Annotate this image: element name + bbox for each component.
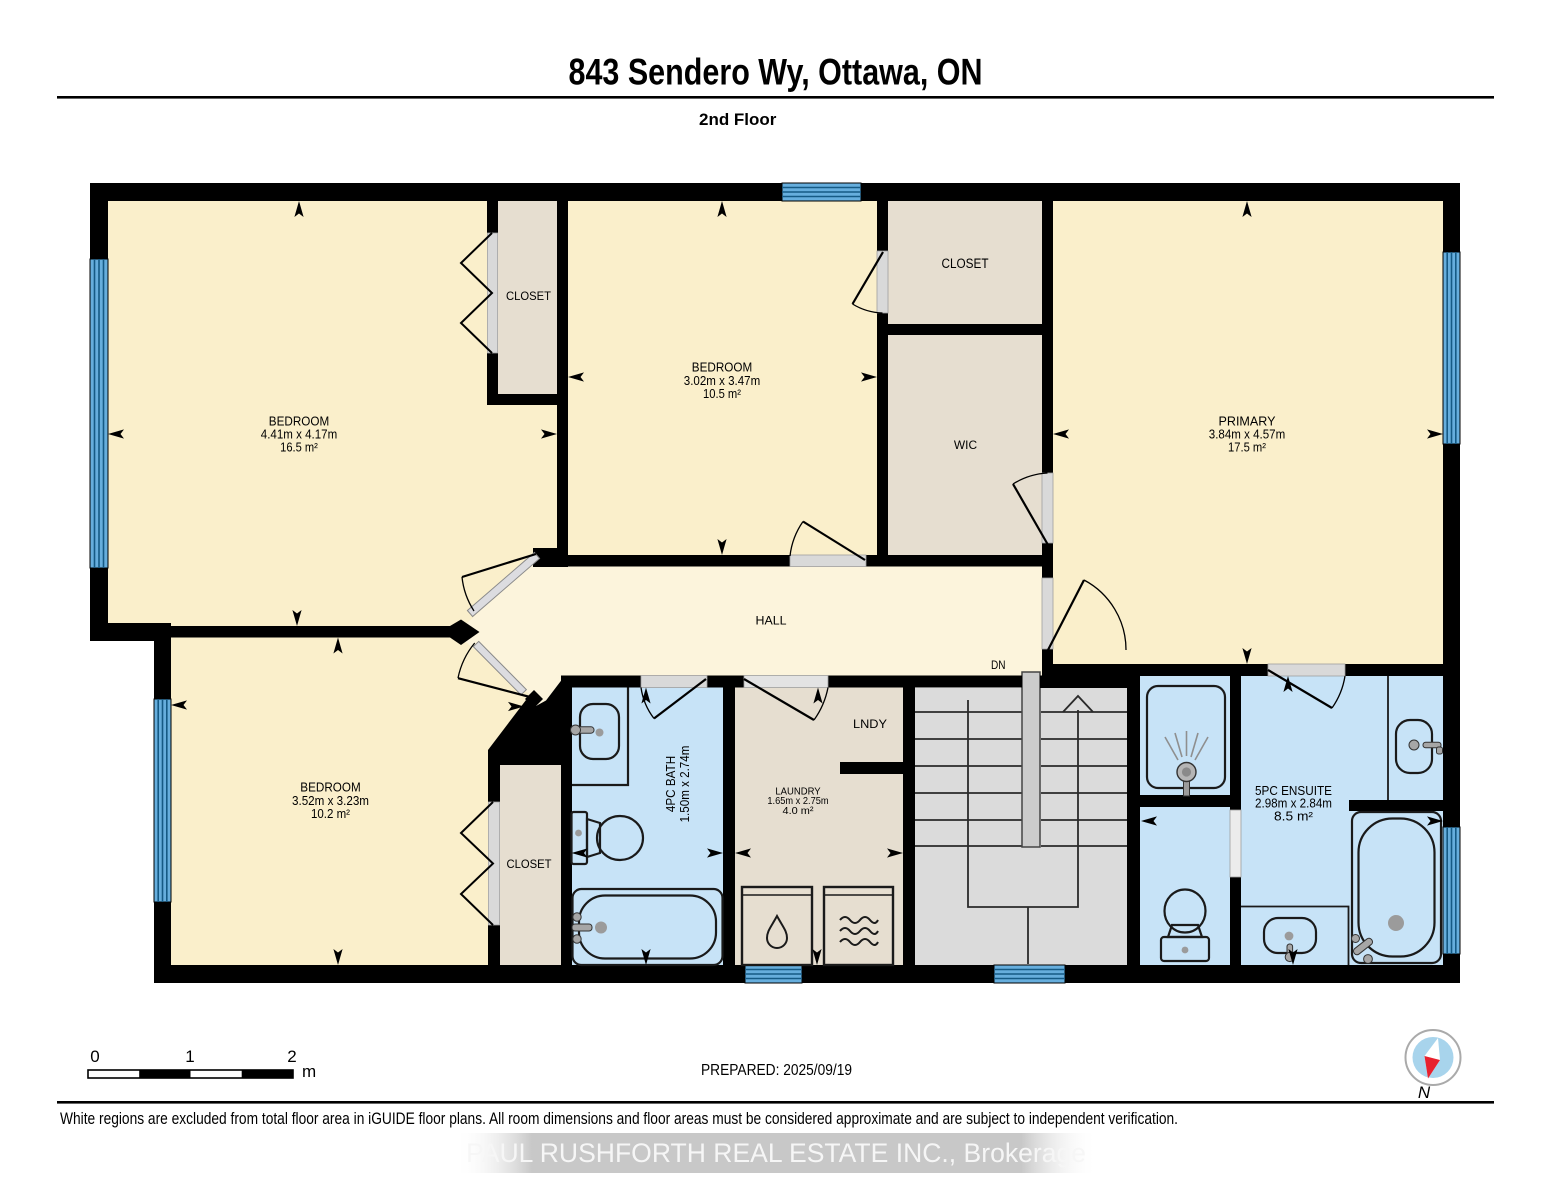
svg-text:HALL: HALL: [756, 614, 787, 628]
svg-text:0: 0: [90, 1047, 99, 1066]
svg-text:CLOSET: CLOSET: [506, 289, 551, 303]
svg-text:8.5 m²: 8.5 m²: [1274, 809, 1314, 824]
svg-text:LNDY: LNDY: [853, 717, 887, 731]
svg-text:2: 2: [287, 1047, 296, 1066]
svg-text:4PC BATH: 4PC BATH: [663, 756, 678, 812]
svg-text:4.0 m²: 4.0 m²: [783, 806, 815, 817]
svg-text:10.5 m²: 10.5 m²: [703, 386, 742, 401]
svg-text:10.2 m²: 10.2 m²: [311, 806, 351, 821]
svg-text:CLOSET: CLOSET: [942, 256, 989, 271]
svg-text:843 Sendero Wy, Ottawa, ON: 843 Sendero Wy, Ottawa, ON: [569, 52, 983, 93]
svg-text:WIC: WIC: [954, 438, 977, 452]
svg-text:PAUL RUSHFORTH REAL ESTATE INC: PAUL RUSHFORTH REAL ESTATE INC., Brokera…: [466, 1138, 1086, 1168]
svg-text:PREPARED: 2025/09/19: PREPARED: 2025/09/19: [701, 1062, 852, 1079]
svg-text:1: 1: [185, 1047, 194, 1066]
svg-text:1.50m x 2.74m: 1.50m x 2.74m: [677, 746, 692, 823]
svg-text:2nd Floor: 2nd Floor: [699, 110, 777, 129]
svg-text:White regions are excluded fro: White regions are excluded from total fl…: [60, 1110, 1178, 1128]
svg-text:m: m: [302, 1062, 316, 1081]
svg-text:17.5 m²: 17.5 m²: [1228, 439, 1267, 454]
svg-text:DN: DN: [991, 658, 1006, 672]
svg-text:CLOSET: CLOSET: [507, 857, 552, 871]
svg-text:N: N: [1418, 1083, 1431, 1102]
svg-text:16.5 m²: 16.5 m²: [280, 439, 318, 454]
